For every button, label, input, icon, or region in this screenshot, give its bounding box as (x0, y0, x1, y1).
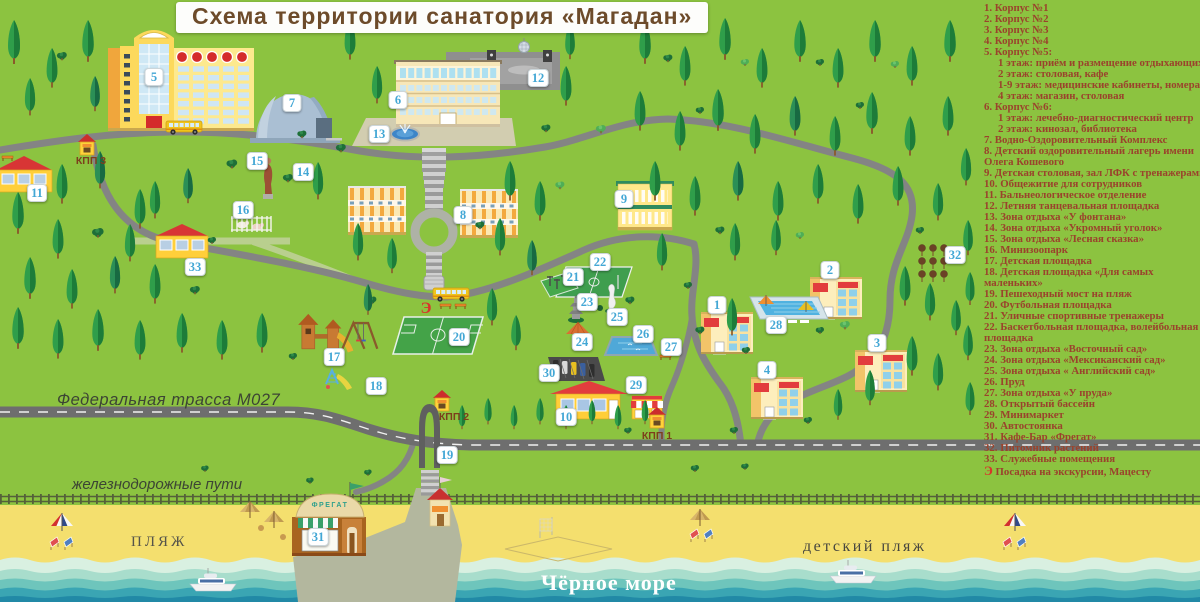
cafe-table (280, 534, 286, 540)
cypress-tree-icon (92, 309, 103, 351)
map-marker-28: 28 (766, 316, 787, 334)
cypress-tree-icon (961, 148, 971, 185)
cypress-tree-icon (834, 389, 842, 420)
bush-icon (306, 478, 313, 484)
cypress-tree-icon (944, 20, 955, 62)
cypress-tree-icon (680, 46, 691, 86)
cypress-tree-icon (900, 266, 911, 306)
bush-icon (201, 466, 208, 472)
cypress-tree-icon (833, 48, 844, 88)
map-marker-29: 29 (626, 376, 647, 394)
cypress-tree-icon (933, 183, 943, 220)
checkpoint-label: КПП 2 (439, 411, 469, 423)
cypress-tree-icon (53, 219, 64, 259)
disco-ball-icon (519, 42, 530, 53)
checkpoint-label: КПП 3 (76, 155, 106, 167)
map-marker-30: 30 (539, 364, 560, 382)
cypress-tree-icon (313, 162, 323, 199)
pool-28 (750, 295, 828, 323)
cypress-tree-icon (869, 20, 880, 62)
bush-icon (190, 286, 200, 294)
cypress-tree-icon (813, 164, 824, 204)
grand-staircase (415, 148, 453, 290)
cypress-tree-icon (8, 20, 20, 64)
bush-icon (741, 59, 749, 66)
map-marker-15: 15 (247, 152, 268, 170)
cypress-tree-icon (905, 116, 916, 156)
bush-icon (741, 464, 748, 470)
map-marker-3: 3 (868, 334, 887, 352)
building-4 (751, 377, 803, 420)
playground-17 (298, 314, 377, 353)
map-marker-11: 11 (27, 184, 47, 202)
cypress-tree-icon (67, 269, 78, 309)
cypress-tree-icon (750, 114, 761, 154)
bush-icon (816, 327, 824, 334)
map-marker-26: 26 (633, 325, 654, 343)
cypress-tree-icon (183, 168, 193, 203)
bush-icon (283, 174, 293, 182)
bush-icon (804, 417, 812, 424)
building-3 (855, 350, 907, 393)
map-marker-7: 7 (283, 94, 302, 112)
map-marker-20: 20 (449, 328, 470, 346)
cypress-tree-icon (217, 320, 228, 360)
map-marker-31: 31 (308, 528, 329, 546)
map-marker-12: 12 (528, 69, 549, 87)
cypress-tree-icon (177, 313, 188, 353)
building-33 (156, 224, 208, 258)
legend-item: 8. Детский оздоровительный лагерь имени … (984, 146, 1200, 168)
sea-label: Чёрное море (541, 570, 677, 596)
map-marker-19: 19 (437, 446, 458, 464)
building-5 (108, 30, 254, 131)
bush-icon (796, 232, 804, 239)
map-marker-24: 24 (572, 333, 593, 351)
cypress-tree-icon (719, 18, 730, 60)
football-field-20 (393, 317, 483, 354)
bush-icon (891, 61, 899, 68)
map-marker-13: 13 (369, 125, 390, 143)
cypress-tree-icon (372, 66, 382, 103)
cypress-tree-icon (484, 398, 491, 424)
bench (2, 156, 13, 161)
bush-icon (856, 102, 864, 109)
bush-icon (715, 227, 724, 235)
bush-icon (663, 55, 672, 63)
bush-icon (289, 353, 297, 360)
cypress-tree-icon (794, 20, 805, 62)
plant-nursery-32 (919, 245, 948, 283)
cypress-tree-icon (135, 189, 146, 229)
page-title: Схема территории санатория «Магадан» (176, 2, 708, 33)
beach-label: ПЛЯЖ (131, 534, 187, 551)
map-marker-6: 6 (389, 91, 408, 109)
map-marker-23: 23 (577, 293, 598, 311)
cypress-tree-icon (24, 257, 35, 299)
legend-item: 33. Служебные помещения (984, 454, 1200, 465)
map-marker-27: 27 (661, 338, 682, 356)
cypress-tree-icon (730, 223, 740, 260)
map-canvas: Схема территории санатория «Магадан» 1. … (0, 0, 1200, 602)
cypress-tree-icon (773, 181, 784, 221)
cypress-tree-icon (47, 48, 58, 88)
cypress-tree-icon (12, 192, 23, 234)
bush-icon (541, 125, 550, 133)
bush-icon (92, 228, 104, 238)
playground-18 (326, 370, 352, 390)
bench (455, 304, 466, 309)
bush-icon (226, 160, 237, 169)
excursion-stop-marker: Э (421, 300, 432, 318)
cypress-tree-icon (110, 256, 120, 293)
cypress-tree-icon (53, 319, 64, 359)
cypress-tree-icon (925, 283, 935, 320)
cypress-tree-icon (690, 176, 701, 216)
railway-label: железнодорожные пути (72, 476, 242, 493)
cypress-tree-icon (535, 181, 546, 221)
bush-icon (691, 465, 699, 472)
cypress-tree-icon (90, 76, 100, 111)
map-marker-22: 22 (590, 253, 611, 271)
bench (440, 304, 451, 309)
cypress-tree-icon (487, 288, 497, 325)
map-marker-21: 21 (563, 268, 584, 286)
cypress-tree-icon (57, 164, 68, 204)
checkpoint-label: КПП 1 (642, 430, 672, 442)
cypress-tree-icon (790, 96, 801, 136)
cypress-tree-icon (771, 220, 781, 255)
cafe-sign-label: ФРЕГАТ (299, 502, 361, 509)
bush-icon (57, 52, 67, 60)
cypress-tree-icon (387, 238, 397, 273)
cypress-tree-icon (25, 78, 35, 115)
railroad (0, 497, 1200, 502)
map-marker-32: 32 (945, 246, 966, 264)
map-marker-10: 10 (556, 408, 577, 426)
cypress-tree-icon (963, 325, 973, 360)
cypress-tree-icon (536, 398, 543, 424)
cypress-tree-icon (135, 320, 146, 360)
road-beach-branch (356, 440, 414, 492)
map-marker-25: 25 (607, 308, 628, 326)
cypress-tree-icon (907, 46, 918, 86)
map-marker-16: 16 (233, 201, 254, 219)
building-6 (394, 60, 502, 127)
legend-item: Э Посадка на экскурсии, Мацесту (984, 465, 1200, 478)
map-marker-17: 17 (324, 348, 345, 366)
kids-beach-label: детский пляж (803, 538, 926, 556)
bush-icon (696, 107, 704, 114)
map-marker-1: 1 (708, 296, 727, 314)
bush-icon (625, 297, 634, 305)
map-marker-14: 14 (293, 163, 314, 181)
cypress-tree-icon (866, 92, 877, 134)
map-marker-18: 18 (366, 377, 387, 395)
cypress-tree-icon (150, 181, 160, 218)
bush-icon (364, 470, 371, 476)
bush-icon (555, 182, 564, 190)
cypress-tree-icon (257, 313, 268, 353)
cypress-tree-icon (733, 161, 744, 201)
map-marker-5: 5 (145, 68, 164, 86)
cypress-tree-icon (364, 284, 372, 315)
cypress-tree-icon (966, 272, 975, 305)
map-marker-4: 4 (758, 361, 777, 379)
cypress-tree-icon (511, 315, 521, 350)
cypress-tree-icon (853, 184, 864, 224)
map-marker-33: 33 (185, 258, 206, 276)
cypress-tree-icon (150, 264, 161, 304)
cypress-tree-icon (951, 300, 961, 335)
cypress-tree-icon (511, 405, 518, 429)
bush-icon (816, 59, 824, 66)
map-marker-9: 9 (615, 190, 634, 208)
legend-item: 18. Детская площадка «Для самых маленьки… (984, 267, 1200, 289)
cypress-tree-icon (12, 307, 23, 349)
map-marker-8: 8 (454, 206, 473, 224)
cypress-tree-icon (757, 48, 768, 88)
federal-road-label: Федеральная трасса М027 (57, 391, 280, 410)
bush-icon (624, 428, 631, 434)
legend-list: 1. Корпус №12. Корпус №23. Корпус №34. К… (984, 3, 1200, 478)
cypress-tree-icon (907, 336, 918, 376)
cypress-tree-icon (933, 353, 943, 390)
cypress-tree-icon (561, 66, 572, 106)
cypress-tree-icon (966, 382, 975, 415)
cypress-tree-icon (943, 96, 954, 136)
bush-icon (916, 227, 924, 234)
bush-icon (840, 321, 850, 329)
cypress-tree-icon (82, 20, 93, 62)
legend-item: 22. Баскетбольная площадка, волейбольная… (984, 322, 1200, 344)
map-marker-2: 2 (821, 261, 840, 279)
cafe-table (258, 525, 264, 531)
